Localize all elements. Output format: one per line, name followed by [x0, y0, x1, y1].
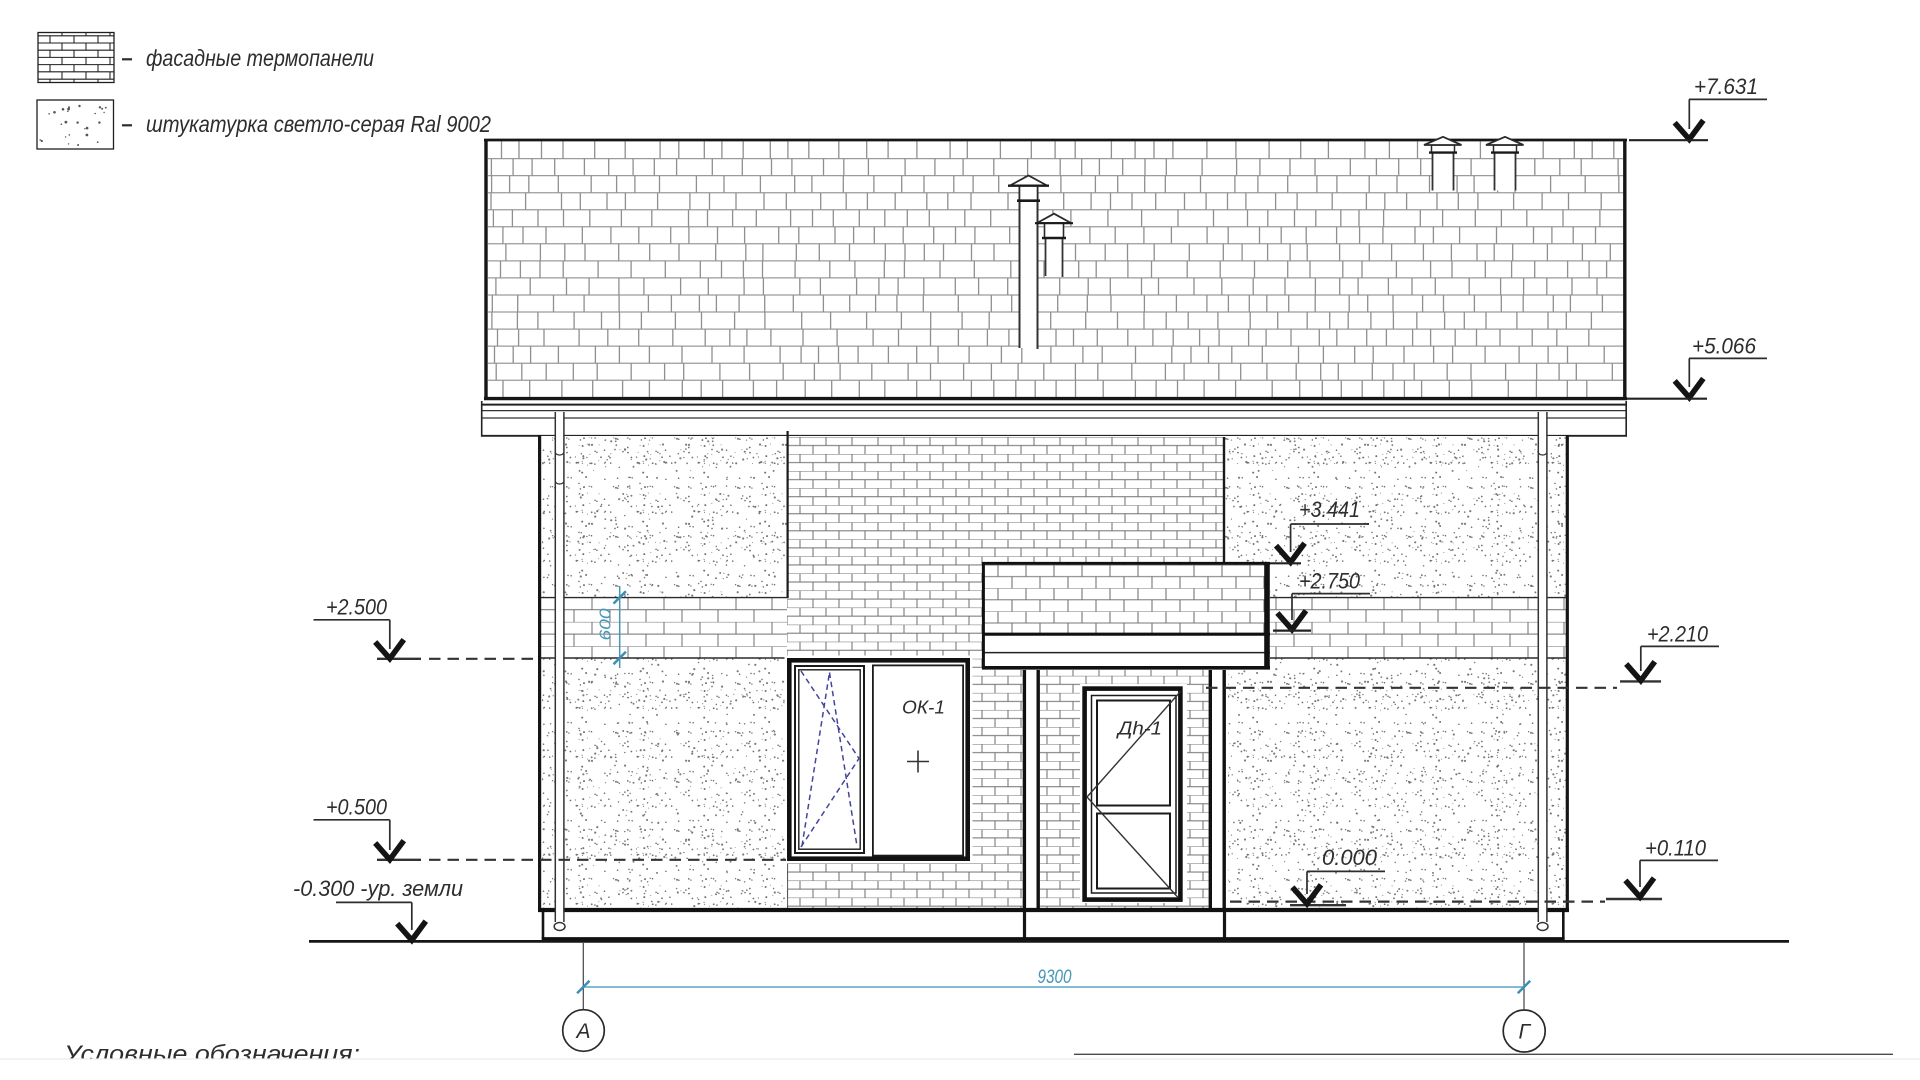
svg-text:-0.300 -ур. земли: -0.300 -ур. земли	[293, 876, 463, 901]
svg-text:Дh-1: Дh-1	[1116, 719, 1162, 739]
svg-text:9300: 9300	[1038, 966, 1072, 988]
svg-text:+5.066: +5.066	[1692, 334, 1757, 359]
svg-text:+7.631: +7.631	[1694, 74, 1758, 99]
svg-text:+2.500: +2.500	[326, 595, 388, 620]
svg-text:+2.750: +2.750	[1299, 569, 1361, 594]
svg-text:ОК-1: ОК-1	[902, 698, 945, 718]
svg-text:А: А	[574, 1020, 590, 1043]
svg-text:600: 600	[598, 608, 615, 640]
svg-text:+0.500: +0.500	[326, 795, 388, 820]
svg-text:0.000: 0.000	[1322, 845, 1378, 870]
svg-text:+3.441: +3.441	[1299, 497, 1360, 522]
svg-text:Г: Г	[1518, 1021, 1531, 1044]
svg-text:+2.210: +2.210	[1647, 622, 1709, 647]
svg-text:штукатурка светло-серая Ral 90: штукатурка светло-серая Ral 9002	[146, 111, 491, 137]
svg-text:+0.110: +0.110	[1645, 836, 1707, 861]
svg-text:фасадные термопанели: фасадные термопанели	[146, 45, 374, 71]
